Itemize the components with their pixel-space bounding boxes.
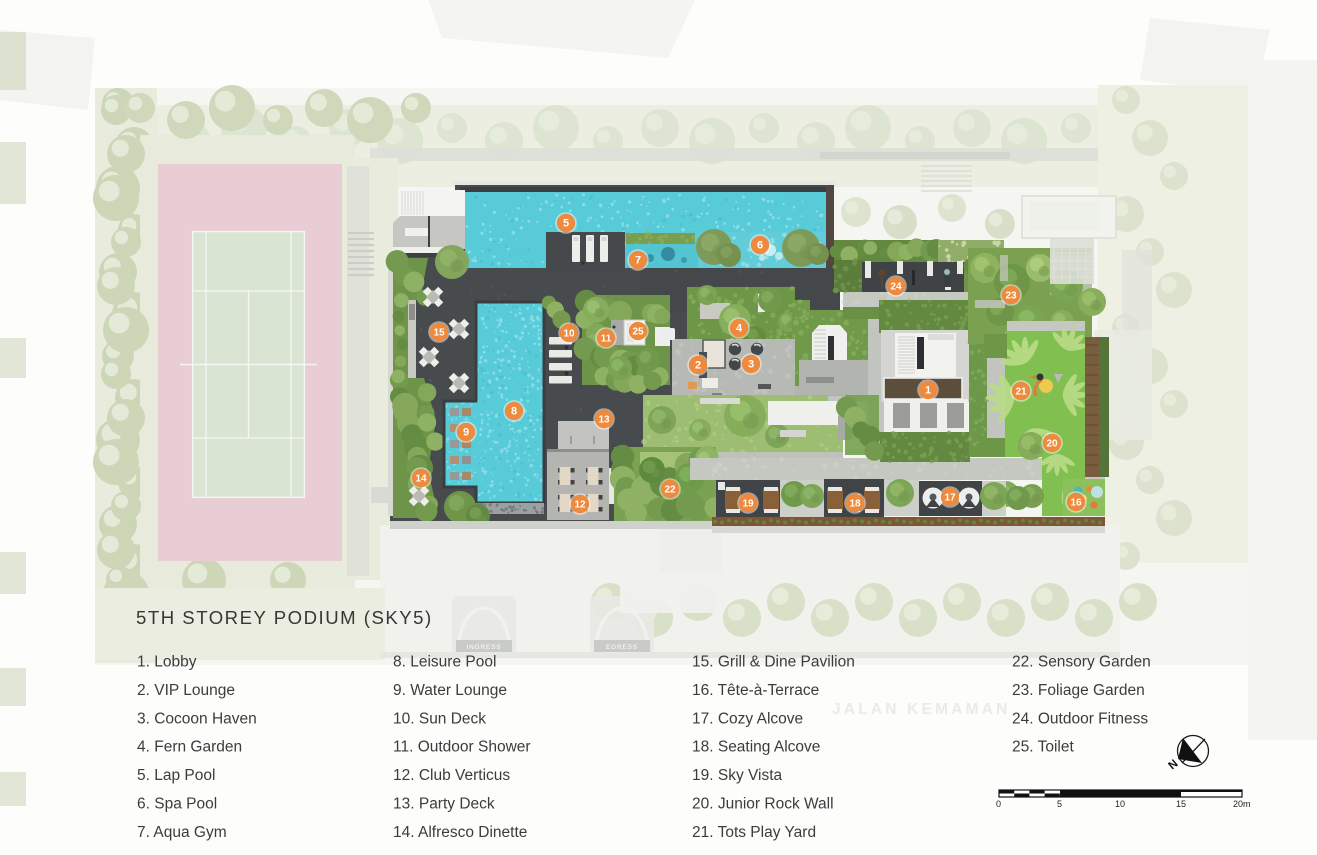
svg-text:6: 6 (757, 240, 763, 252)
svg-text:14: 14 (415, 474, 427, 485)
svg-text:6. Spa Pool: 6. Spa Pool (137, 796, 217, 813)
svg-text:1: 1 (925, 385, 931, 397)
svg-text:12: 12 (574, 500, 586, 511)
svg-text:5: 5 (1057, 799, 1062, 809)
svg-text:5TH STOREY PODIUM (SKY5): 5TH STOREY PODIUM (SKY5) (136, 607, 433, 628)
svg-text:19: 19 (742, 499, 754, 510)
svg-text:4. Fern Garden: 4. Fern Garden (137, 739, 242, 756)
svg-text:20. Junior Rock Wall: 20. Junior Rock Wall (692, 796, 834, 813)
svg-text:15: 15 (1176, 799, 1186, 809)
svg-text:1. Lobby: 1. Lobby (137, 654, 197, 671)
svg-text:18: 18 (849, 499, 861, 510)
svg-text:8: 8 (511, 406, 517, 418)
svg-text:3. Cocoon Haven: 3. Cocoon Haven (137, 710, 257, 727)
svg-text:2: 2 (695, 360, 701, 372)
svg-text:17: 17 (944, 493, 956, 504)
svg-text:13: 13 (598, 415, 610, 426)
svg-text:21. Tots Play Yard: 21. Tots Play Yard (692, 824, 816, 841)
svg-text:18. Seating Alcove: 18. Seating Alcove (692, 739, 820, 756)
svg-text:25: 25 (632, 327, 644, 338)
svg-text:10: 10 (563, 329, 575, 340)
svg-text:12. Club Verticus: 12. Club Verticus (393, 767, 510, 784)
svg-text:13. Party Deck: 13. Party Deck (393, 796, 495, 813)
svg-text:20: 20 (1046, 439, 1058, 450)
svg-text:16: 16 (1070, 498, 1082, 509)
svg-text:JALAN KEMAMAN: JALAN KEMAMAN (832, 701, 1011, 718)
svg-text:INGRESS: INGRESS (467, 644, 502, 651)
svg-text:2. VIP Lounge: 2. VIP Lounge (137, 682, 235, 699)
svg-text:5. Lap Pool: 5. Lap Pool (137, 767, 215, 784)
svg-text:21: 21 (1015, 387, 1027, 398)
svg-text:7: 7 (635, 255, 641, 267)
svg-text:4: 4 (736, 323, 743, 335)
svg-text:9: 9 (463, 427, 469, 439)
svg-text:7. Aqua Gym: 7. Aqua Gym (137, 824, 227, 841)
svg-text:15: 15 (433, 328, 445, 339)
svg-text:22: 22 (664, 485, 676, 496)
svg-text:3: 3 (748, 359, 754, 371)
svg-text:11. Outdoor Shower: 11. Outdoor Shower (393, 739, 531, 756)
svg-text:5: 5 (563, 218, 569, 230)
svg-text:16. Tête-à-Terrace: 16. Tête-à-Terrace (692, 682, 819, 699)
svg-text:10. Sun Deck: 10. Sun Deck (393, 710, 486, 727)
svg-text:24. Outdoor Fitness: 24. Outdoor Fitness (1012, 710, 1148, 727)
svg-text:17. Cozy Alcove: 17. Cozy Alcove (692, 710, 803, 727)
svg-text:11: 11 (601, 334, 612, 345)
svg-text:0: 0 (996, 799, 1001, 809)
svg-text:8. Leisure Pool: 8. Leisure Pool (393, 654, 496, 671)
svg-text:14. Alfresco Dinette: 14. Alfresco Dinette (393, 824, 527, 841)
svg-text:19. Sky Vista: 19. Sky Vista (692, 767, 783, 784)
svg-text:25. Toilet: 25. Toilet (1012, 739, 1074, 756)
svg-text:10: 10 (1115, 799, 1125, 809)
svg-text:24: 24 (890, 282, 902, 293)
svg-text:20m: 20m (1233, 799, 1251, 809)
svg-text:EGRESS: EGRESS (606, 644, 638, 651)
svg-text:15. Grill & Dine Pavilion: 15. Grill & Dine Pavilion (692, 654, 855, 671)
svg-text:22. Sensory Garden: 22. Sensory Garden (1012, 654, 1151, 671)
svg-text:23: 23 (1005, 291, 1017, 302)
svg-text:23. Foliage Garden: 23. Foliage Garden (1012, 682, 1145, 699)
svg-text:9. Water Lounge: 9. Water Lounge (393, 682, 507, 699)
